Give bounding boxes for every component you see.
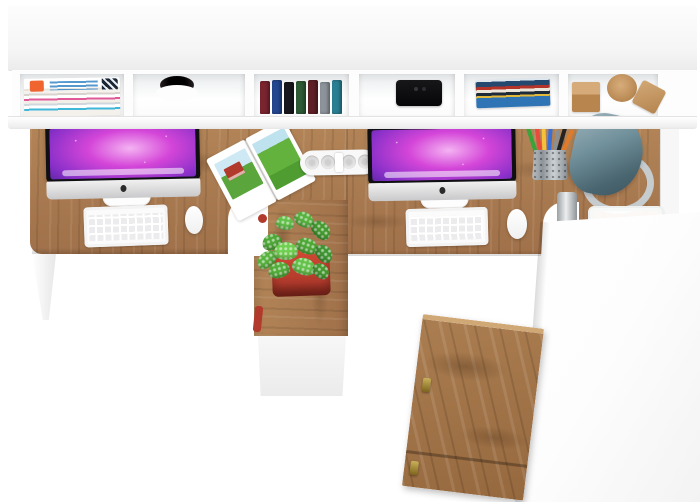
return-pedestal-front xyxy=(258,336,346,396)
cabinet-oak-door xyxy=(402,314,544,501)
upright-books xyxy=(258,78,350,116)
desk-leg-left xyxy=(32,254,56,320)
imac-right xyxy=(365,121,519,214)
book-spine xyxy=(260,81,270,114)
power-socket xyxy=(321,155,335,169)
power-socket xyxy=(342,155,356,169)
potted-plant xyxy=(256,212,340,298)
keyboard-keys xyxy=(411,215,484,241)
plant-leaf xyxy=(274,242,298,260)
power-socket xyxy=(305,155,319,169)
book-spine xyxy=(332,80,342,114)
mesh-cup xyxy=(532,150,568,180)
imac-chin xyxy=(46,178,200,199)
brass-key xyxy=(409,461,419,476)
imac-screen xyxy=(45,120,200,183)
apple-logo-icon xyxy=(120,185,126,192)
keyboard-keys xyxy=(89,213,164,242)
pencil-cup xyxy=(528,122,574,182)
book-spine xyxy=(296,81,306,114)
desk-front-edge-right xyxy=(348,250,543,256)
book-spine xyxy=(308,80,318,114)
wood-block-cube xyxy=(572,82,600,112)
product-image xyxy=(0,0,700,502)
imac-screen xyxy=(367,123,516,186)
speaker xyxy=(396,80,442,106)
plant-leaf xyxy=(275,215,295,232)
imac-left xyxy=(43,118,203,211)
apple-logo-icon xyxy=(439,187,445,194)
power-strip-connector xyxy=(335,153,343,172)
horizontal-book-stack xyxy=(476,78,551,109)
magazine-stack xyxy=(24,77,121,117)
desk-front-edge-left xyxy=(32,248,228,254)
hutch-front-edge xyxy=(8,116,697,129)
book-spine xyxy=(284,82,294,114)
drawer-seam xyxy=(406,450,527,468)
magazine-cover-pattern xyxy=(102,78,118,89)
book-spine xyxy=(320,82,330,114)
power-strip xyxy=(300,149,376,175)
cable-grommet-lip xyxy=(156,85,198,101)
brass-key xyxy=(422,378,432,393)
magazine-logo xyxy=(30,80,44,91)
keyboard-right xyxy=(406,207,489,247)
imac-chin xyxy=(368,181,516,202)
book-spine xyxy=(272,80,282,114)
keyboard-left xyxy=(83,205,168,248)
magazine-title-lines xyxy=(50,81,98,91)
hutch-top-panel xyxy=(8,6,697,71)
